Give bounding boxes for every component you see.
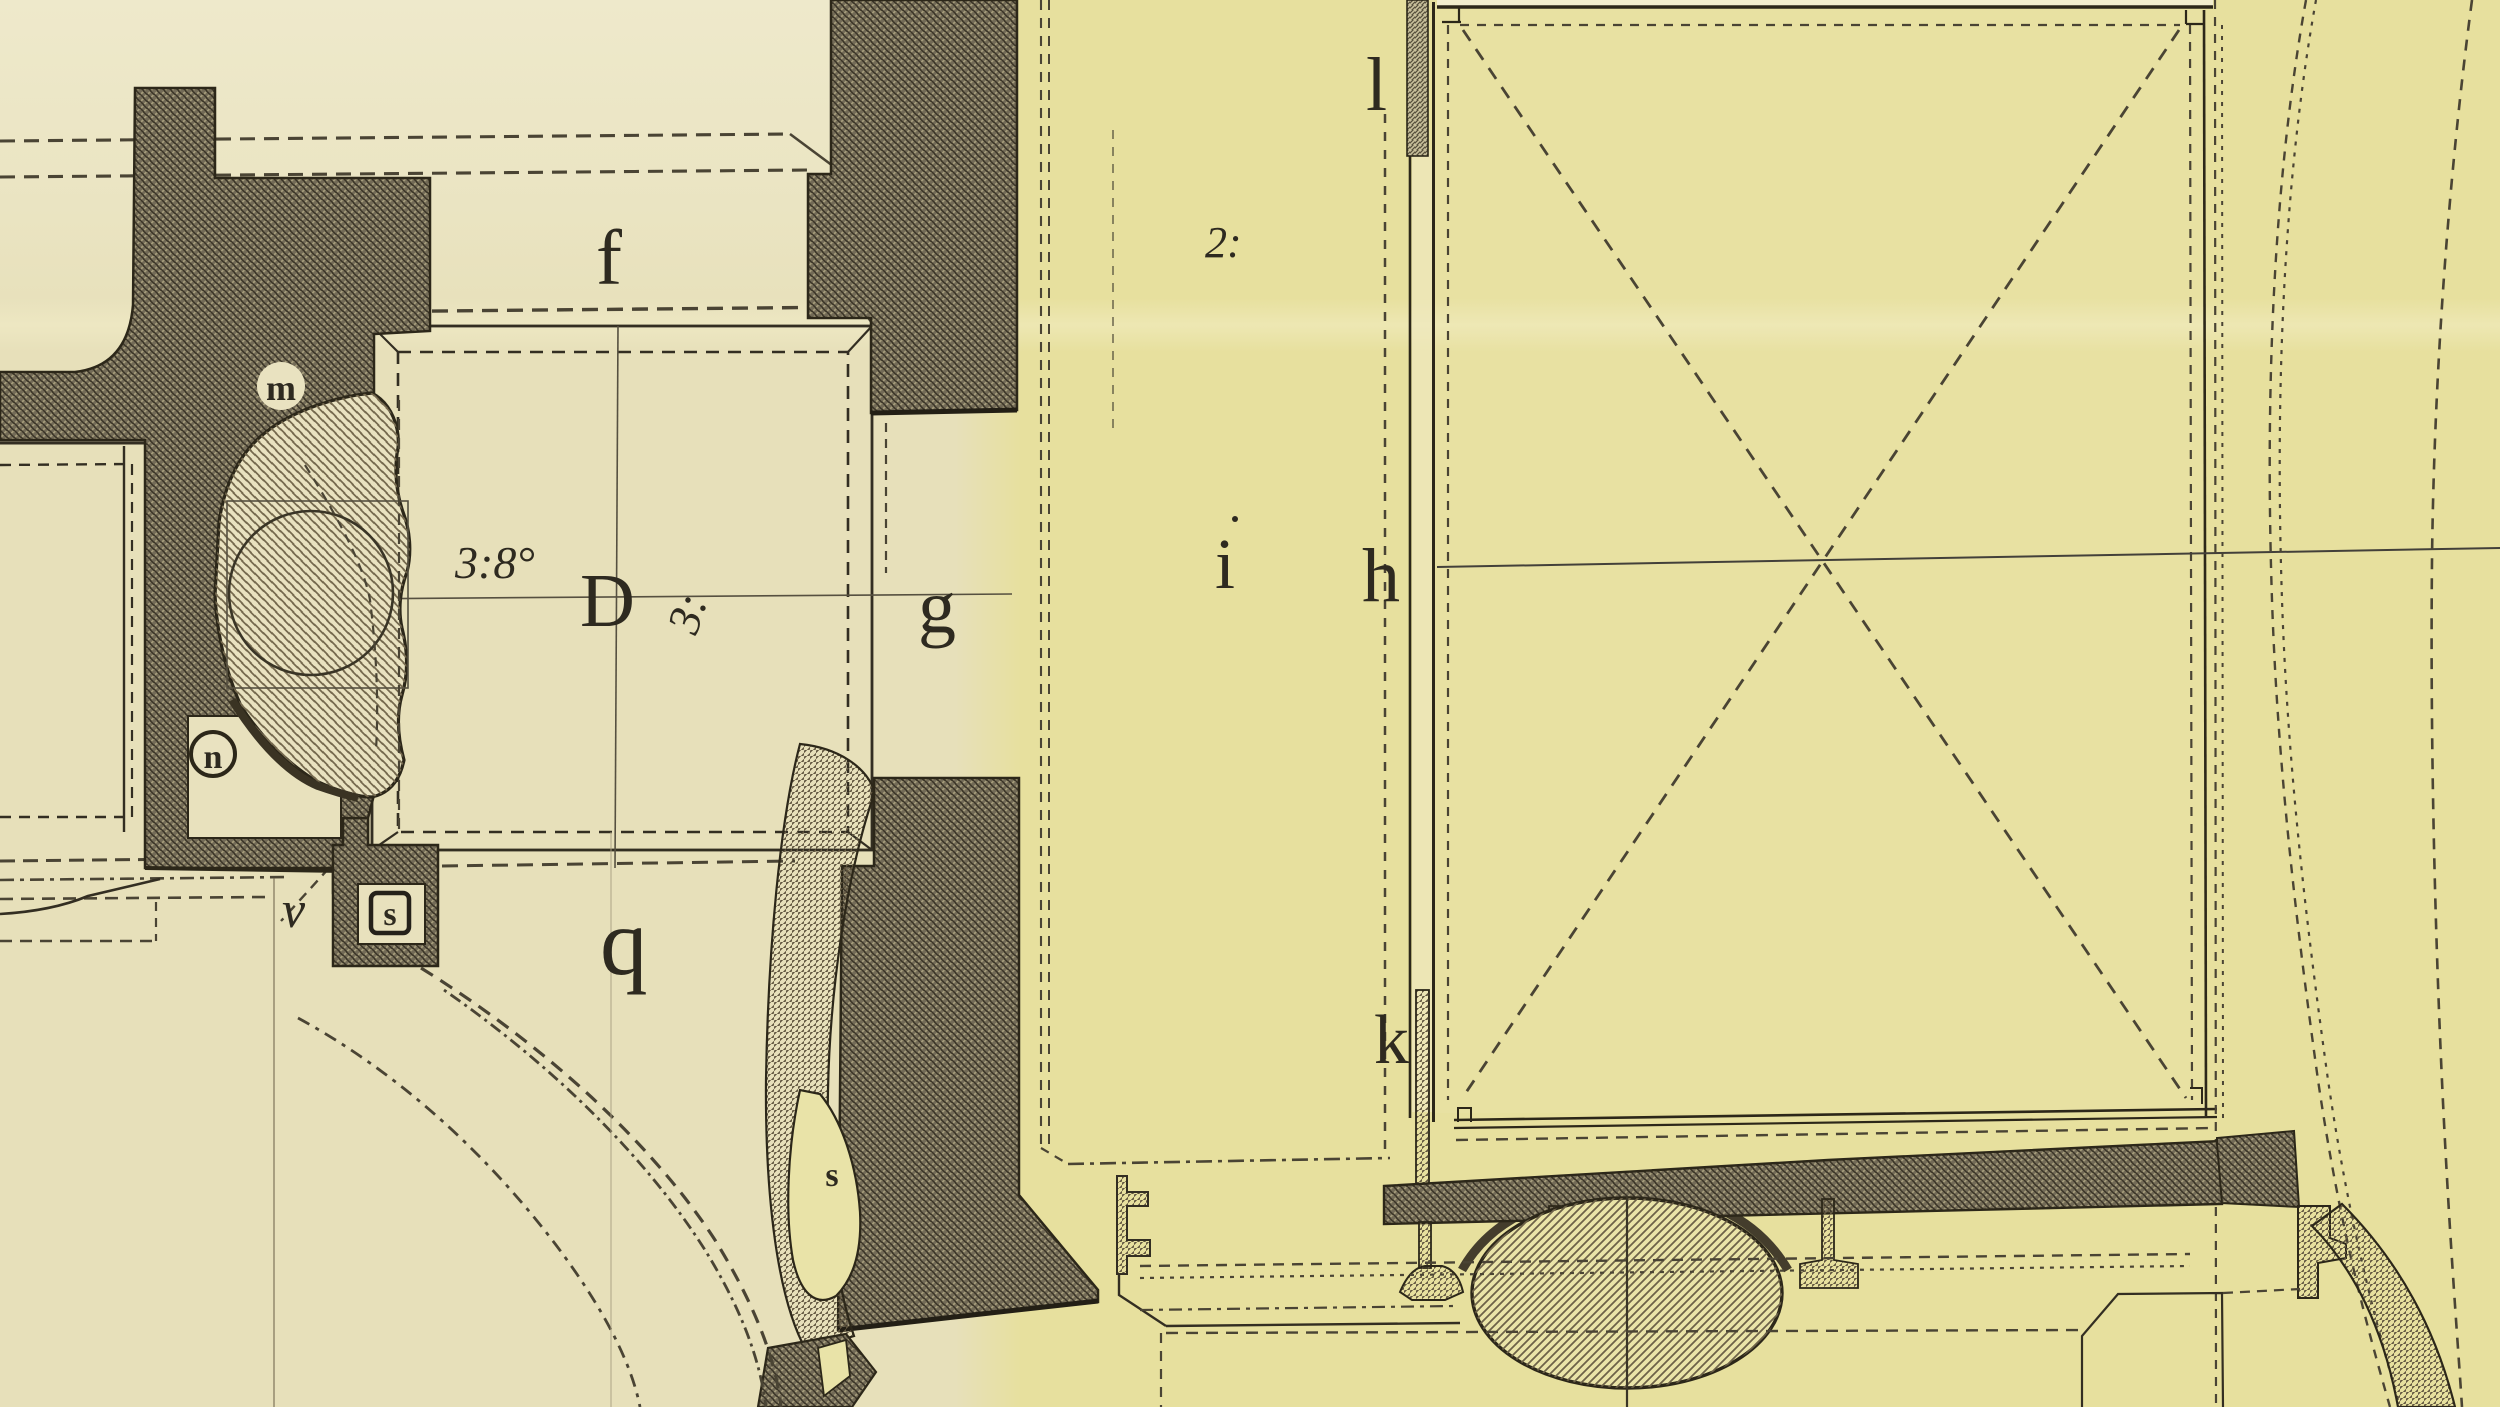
svg-text:2:: 2:: [1205, 218, 1242, 267]
svg-text:s: s: [825, 1157, 838, 1194]
svg-text:n: n: [204, 739, 223, 776]
svg-text:v: v: [282, 882, 306, 939]
svg-text:3:8°: 3:8°: [454, 537, 535, 588]
svg-text:i: i: [1215, 524, 1235, 604]
svg-text:g: g: [918, 565, 956, 649]
svg-text:D: D: [580, 559, 635, 643]
svg-text:k: k: [1374, 1002, 1409, 1079]
svg-text:s: s: [383, 896, 396, 933]
svg-text:l: l: [1366, 43, 1387, 127]
svg-text:q: q: [600, 889, 648, 995]
svg-text:f: f: [596, 214, 622, 301]
svg-text:m: m: [266, 368, 296, 408]
svg-text:h: h: [1362, 534, 1400, 618]
